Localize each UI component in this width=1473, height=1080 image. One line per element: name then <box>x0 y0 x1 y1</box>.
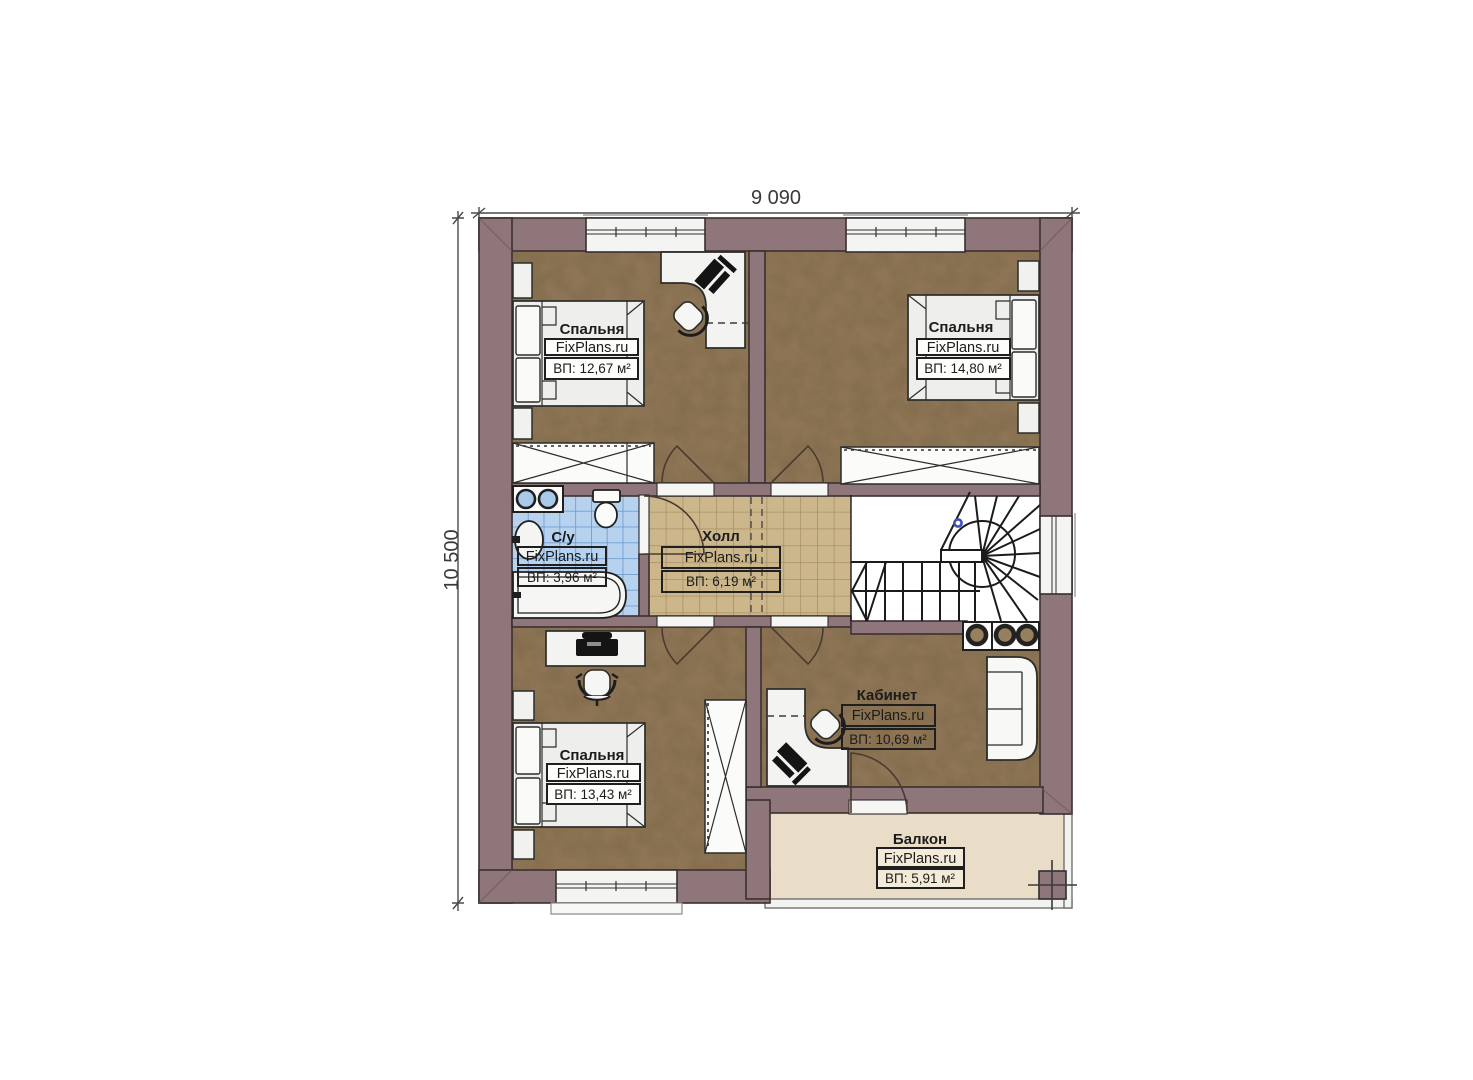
svg-text:ВП: 14,80 м²: ВП: 14,80 м² <box>924 361 1002 376</box>
svg-text:FixPlans.ru: FixPlans.ru <box>557 766 630 782</box>
svg-text:ВП: 3,96 м²: ВП: 3,96 м² <box>527 570 598 585</box>
svg-text:Холл: Холл <box>702 528 740 545</box>
svg-text:Спальня: Спальня <box>560 321 625 338</box>
svg-text:FixPlans.ru: FixPlans.ru <box>927 340 1000 356</box>
svg-text:ВП: 12,67 м²: ВП: 12,67 м² <box>553 361 631 376</box>
svg-text:9 090: 9 090 <box>751 187 801 209</box>
svg-text:Кабинет: Кабинет <box>857 687 918 704</box>
svg-text:FixPlans.ru: FixPlans.ru <box>556 340 629 356</box>
svg-text:FixPlans.ru: FixPlans.ru <box>884 851 957 867</box>
svg-text:ВП: 10,69 м²: ВП: 10,69 м² <box>849 732 927 747</box>
svg-text:FixPlans.ru: FixPlans.ru <box>685 550 758 566</box>
svg-text:ВП: 13,43 м²: ВП: 13,43 м² <box>554 787 632 802</box>
svg-text:С/у: С/у <box>551 529 575 546</box>
svg-text:Спальня: Спальня <box>560 747 625 764</box>
svg-text:ВП: 6,19 м²: ВП: 6,19 м² <box>686 574 757 589</box>
svg-text:FixPlans.ru: FixPlans.ru <box>852 708 925 724</box>
svg-text:ВП: 5,91 м²: ВП: 5,91 м² <box>885 871 956 886</box>
svg-text:FixPlans.ru: FixPlans.ru <box>526 549 599 565</box>
svg-text:Спальня: Спальня <box>929 319 994 336</box>
svg-text:Балкон: Балкон <box>893 831 947 848</box>
svg-text:10 500: 10 500 <box>441 529 463 590</box>
